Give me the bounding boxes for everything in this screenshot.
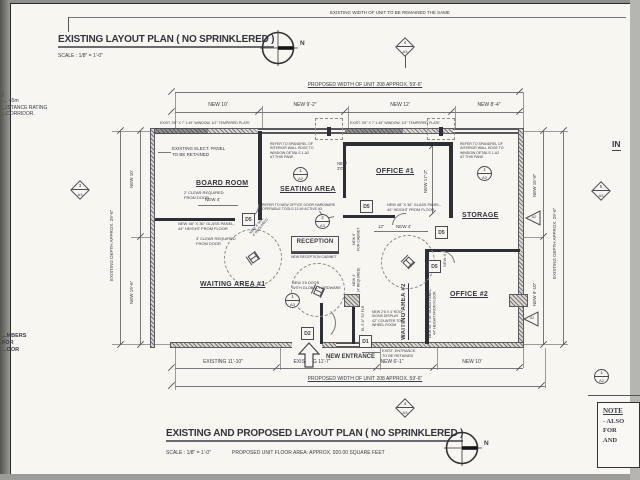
note-elect-panel: EXISTING ELECT. PANEL TO BE RETAINED bbox=[172, 146, 225, 157]
partition-office1-right bbox=[449, 146, 453, 218]
margin-note-top: ) ..., 45m ...ISTANCE RATING ...CORRIDOR… bbox=[2, 92, 47, 117]
dim-twelve: 12" bbox=[378, 224, 384, 229]
detail-tag-1a2: 1 A2 bbox=[594, 369, 609, 384]
edge-label-in: IN bbox=[612, 139, 621, 151]
proposed-plan-scale: SCALE : 1/8" = 1'-0" bbox=[166, 450, 211, 456]
detail-tag-1a3: 1 A3 bbox=[285, 293, 300, 308]
note-box-title: NOTE bbox=[603, 407, 639, 416]
circle-divider bbox=[316, 221, 329, 222]
dim-bottom-seg1: EXISTING 11'-10" bbox=[193, 359, 253, 365]
diamond-divider bbox=[397, 407, 413, 408]
note-reception-cabinet: NEW RECEPTION CABINET bbox=[291, 255, 337, 259]
dim-line-right-overall bbox=[563, 131, 564, 345]
diamond-divider bbox=[593, 190, 609, 191]
room-office1: OFFICE #1 bbox=[376, 168, 414, 175]
dim-door30: NEW 3'0" bbox=[337, 161, 347, 172]
note-sign-display: NEW 2'6 X 4' ROOF SIGNS DISPLAY 42" COUN… bbox=[372, 310, 404, 328]
dim-bottom-seg4: NEW 10' bbox=[442, 359, 502, 365]
room-office2: OFFICE #2 bbox=[450, 291, 488, 298]
detail-tag-2a3: 2 A3 bbox=[315, 214, 330, 229]
wall-left bbox=[150, 128, 155, 348]
circle-divider bbox=[595, 376, 608, 377]
ext-line bbox=[455, 106, 456, 128]
ext-line bbox=[437, 348, 438, 370]
entrance-arrow-icon bbox=[298, 342, 320, 368]
note-spandrel: REFER TO SPANDREL OF INTERIOR WALL EDGE … bbox=[460, 142, 516, 160]
detail-sheet: A3 bbox=[71, 192, 89, 197]
dim-line-right-segments bbox=[543, 131, 544, 345]
existing-plan-title: EXISTING LAYOUT PLAN ( NO SPRINKLERED ) bbox=[58, 34, 274, 48]
margin-note-bottom: ...MBERS FOR ...OOR bbox=[2, 333, 26, 354]
circle-divider bbox=[478, 173, 491, 174]
detail-sheet: A3 bbox=[592, 193, 610, 198]
top-note: EXISTING WIDTH OF UNIT TO BE REMAINED TH… bbox=[330, 10, 450, 16]
dim-top-seg3: NEW 12' bbox=[372, 102, 428, 108]
door-tag-d5: D5 bbox=[428, 260, 441, 273]
dim-line-left-segments bbox=[140, 131, 141, 345]
dim-line-top-overall bbox=[175, 92, 523, 93]
dim-cabinet6: NEW 6' FOR CABINET bbox=[352, 220, 361, 258]
tag-label: A2 bbox=[532, 215, 536, 219]
detail-sheet: A2 bbox=[477, 175, 492, 180]
dim-line-top-segments bbox=[175, 112, 523, 113]
dim-left-overall: EXISTING DEPTH APPROX. 29'-6" bbox=[109, 190, 114, 300]
partition-vestibule-right bbox=[352, 303, 355, 344]
label-new-entrance: NEW ENTRANCE bbox=[326, 354, 375, 362]
detail-number: 1 bbox=[285, 294, 300, 299]
note-door-hardware: REFER TO NEW OFFICE DOOR HARDWARE OPERAB… bbox=[262, 203, 344, 212]
detail-tag-1a2: 1 A2 bbox=[293, 167, 308, 182]
leader-line bbox=[362, 352, 380, 353]
scanned-drawing: EXISTING WIDTH OF UNIT TO BE REMAINED TH… bbox=[0, 0, 640, 480]
detail-tag-5a3: 5 A3 bbox=[592, 182, 610, 200]
detail-number: 3 bbox=[71, 183, 89, 188]
dim-counter-elevation: EL 3'-6" TO FLR bbox=[361, 300, 365, 336]
existing-plan-scale: SCALE : 1/8" = 1'-0" bbox=[58, 53, 103, 59]
door-tag-d2: D2 bbox=[301, 327, 314, 340]
wall-top-solid-seg bbox=[150, 128, 208, 134]
detail-number: 4 bbox=[396, 40, 414, 45]
dim-top-seg2: NEW 9'-2" bbox=[277, 102, 333, 108]
scan-edge-bottom bbox=[0, 474, 640, 480]
detail-sheet: A3 bbox=[285, 302, 300, 307]
ext-line bbox=[523, 92, 524, 128]
room-waiting1: WAITING AREA #1 bbox=[200, 281, 265, 288]
dim-line-left-overall bbox=[120, 131, 121, 345]
dim-top-seg4: NEW 8'-4" bbox=[461, 102, 517, 108]
ext-line bbox=[523, 348, 524, 368]
note-glass-waiting2: NEW 48" X 36" GLASS PANEL, 44" HEIGHT FR… bbox=[428, 283, 437, 343]
detail-tag-3a3: 3 A3 bbox=[71, 181, 89, 199]
ext-line bbox=[175, 348, 176, 390]
note-box-lines: - ALSO FOR AND bbox=[603, 417, 639, 445]
margin-line bbox=[588, 395, 640, 396]
door-tag-d5: D5 bbox=[435, 226, 448, 239]
detail-tag-stem bbox=[405, 56, 406, 68]
north-label: N bbox=[300, 40, 305, 48]
circle-divider bbox=[294, 174, 307, 175]
room-reception: RECEPTION bbox=[293, 239, 337, 245]
dim-left-seg1: NEW 10' bbox=[129, 152, 134, 207]
tag-label: A2 bbox=[530, 316, 534, 320]
door-tag-d5: D5 bbox=[242, 213, 255, 226]
mullion bbox=[439, 127, 443, 136]
revision-tag-a2: A2 bbox=[524, 210, 542, 226]
leader-line bbox=[158, 152, 171, 153]
dim-office1-depth: NEW 17'-2" bbox=[423, 152, 428, 210]
note-box: NOTE - ALSO FOR AND bbox=[597, 402, 640, 468]
note-window: EXIST. 3'6" X 7' 1.49" WINDOW, 1/2" TEMP… bbox=[350, 121, 445, 125]
note-clear3: 3' CLEAR REQUIRED FROM DOOR bbox=[196, 236, 236, 246]
note-spandrel: REFER TO SPANDREL OF INTERIOR WALL EDGE … bbox=[270, 142, 326, 160]
detail-sheet: A3 bbox=[315, 223, 330, 228]
partition-office1-left bbox=[343, 146, 346, 198]
door-tag-d1: D1 bbox=[359, 335, 372, 348]
diamond-divider bbox=[72, 189, 88, 190]
detail-number: 4 bbox=[396, 401, 414, 406]
dim-wall4: NEW 4' (4' REQUIRED) bbox=[352, 260, 361, 300]
detail-number: 1 bbox=[293, 168, 308, 173]
room-seating: SEATING AREA bbox=[280, 186, 336, 193]
partition-office1-top bbox=[343, 142, 453, 146]
dim-left-seg2: NEW 19'-6" bbox=[129, 262, 134, 322]
reception-counter bbox=[291, 252, 339, 254]
dim-right-overall: EXISTING DEPTH APPROX. 29'-6" bbox=[552, 188, 557, 298]
note-glass-office1: NEW 48" X 36" GLASS PANEL, 44" HEIGHT FR… bbox=[387, 203, 441, 212]
detail-tag-4a3-bottom: 4 A3 bbox=[396, 399, 414, 417]
top-reference-line bbox=[68, 17, 626, 18]
north-label: N bbox=[484, 440, 489, 448]
proposed-plan-area: PROPOSED UNIT FLOOR AREA: APPROX. 920.00… bbox=[232, 450, 385, 456]
detail-number: 5 bbox=[592, 184, 610, 189]
dim-office1-door: NEW 4' bbox=[396, 224, 411, 229]
ext-line bbox=[280, 348, 281, 370]
detail-sheet: A2 bbox=[594, 378, 609, 383]
ext-line bbox=[262, 106, 263, 128]
partition-office1-bottom bbox=[343, 215, 395, 218]
dim-board-door: NEW 4' bbox=[205, 197, 220, 202]
proposed-plan-title: EXISTING AND PROPOSED LAYOUT PLAN ( NO S… bbox=[166, 428, 463, 442]
detail-tag-1a2: 1 A2 bbox=[477, 166, 492, 181]
dim-top-seg1: NEW 10' bbox=[190, 102, 246, 108]
dim-bottom-overall: PROPOSED WIDTH OF UNIT 208 APPROX. 59'-6… bbox=[250, 376, 480, 382]
detail-number: 2 bbox=[315, 215, 330, 220]
counter-block bbox=[509, 294, 528, 307]
circle-divider bbox=[286, 300, 299, 301]
dim-storage-door: NEW 4' bbox=[442, 248, 447, 272]
door-tag-d5: D5 bbox=[360, 200, 373, 213]
detail-tag-4a3-top: 4 A3 bbox=[396, 38, 414, 56]
dim-line-bottom-segments bbox=[175, 368, 523, 369]
ext-line bbox=[348, 106, 349, 128]
detail-sheet: A3 bbox=[396, 49, 414, 54]
note-door36: NEW 3'6 DOOR WITH GLOBAL HARDWARE bbox=[292, 281, 341, 290]
detail-sheet: A3 bbox=[396, 410, 414, 415]
revision-tag-a2: A2 bbox=[522, 311, 540, 327]
room-waiting2: WAITING AREA #2 bbox=[401, 268, 407, 340]
north-compass-icon bbox=[444, 430, 484, 466]
note-glass-board: NEW 48" X 36" GLASS PANEL, 44" HEIGHT FR… bbox=[178, 221, 235, 231]
detail-number: 1 bbox=[594, 370, 609, 375]
dim-right-seg1: NEW 15'-8" bbox=[532, 155, 537, 215]
detail-number: 1 bbox=[477, 167, 492, 172]
diamond-divider bbox=[397, 46, 413, 47]
window-existing bbox=[453, 129, 523, 133]
detail-sheet: A2 bbox=[293, 176, 308, 181]
north-compass-icon bbox=[260, 30, 300, 66]
note-window: EXIST. 3'6" X 7' 1.49" WINDOW, 1/2" TEMP… bbox=[160, 121, 255, 125]
room-storage: STORAGE bbox=[462, 212, 499, 219]
mullion bbox=[327, 127, 331, 136]
dim-line-bottom-overall bbox=[175, 386, 545, 387]
note-exist-entrance: EXIST. ENTRANCE TO BE RETAINED bbox=[382, 349, 416, 358]
wall-top-solid-seg bbox=[345, 128, 403, 134]
top-reference-tick bbox=[68, 17, 69, 32]
room-board: BOARD ROOM bbox=[196, 180, 248, 187]
dim-top-overall: PROPOSED WIDTH OF UNIT 208 APPROX. 59'-6… bbox=[250, 82, 480, 88]
scan-edge-left bbox=[0, 0, 10, 480]
